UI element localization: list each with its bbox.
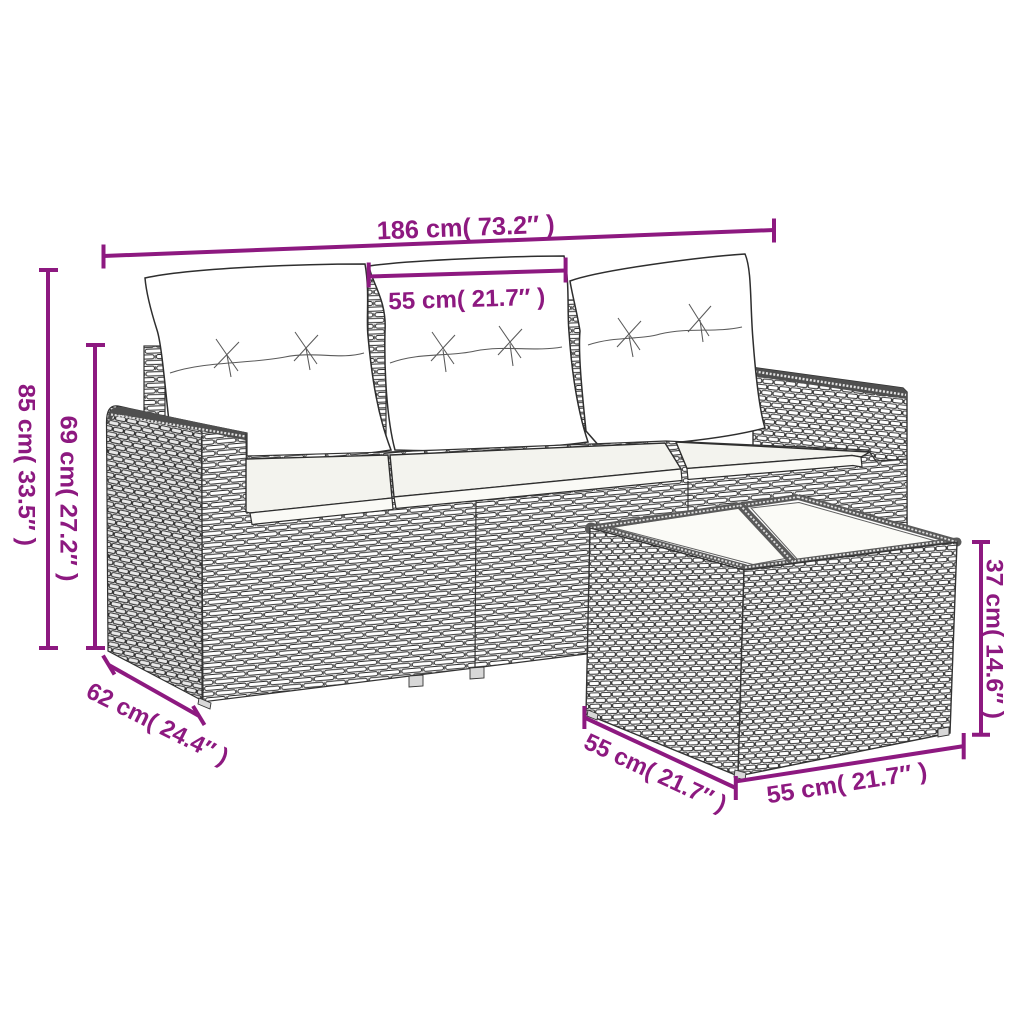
svg-text:85 cm( 33.5″ ): 85 cm( 33.5″ ) [13,384,40,546]
svg-text:37 cm( 14.6″ ): 37 cm( 14.6″ ) [981,559,1008,719]
svg-text:69 cm( 27.2″ ): 69 cm( 27.2″ ) [55,416,82,582]
svg-text:55 cm( 21.7″ ): 55 cm( 21.7″ ) [388,284,546,316]
